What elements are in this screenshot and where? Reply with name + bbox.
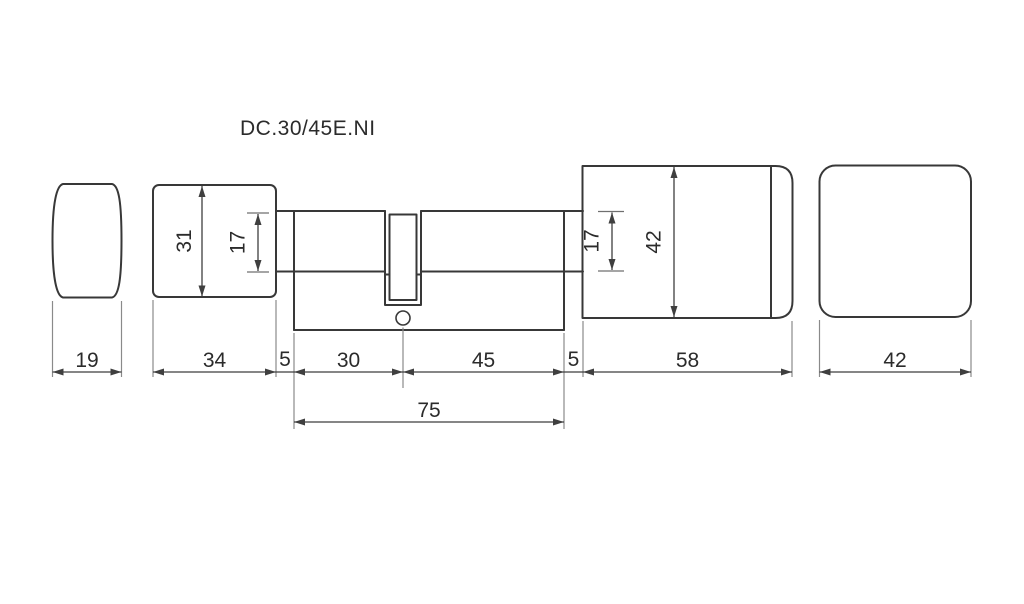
dim-label-75: 75: [417, 399, 440, 422]
dim-label-34: 34: [203, 349, 227, 372]
drawing-canvas: DC.30/45E.NI 19 34 5 30 45 5 58 42 75 31…: [0, 0, 1024, 604]
dim-label-42-knob: 42: [643, 230, 666, 253]
dim-label-5-left: 5: [279, 348, 291, 371]
dim-label-58: 58: [676, 349, 699, 372]
dim-label-19: 19: [75, 349, 98, 372]
dim-label-5-right: 5: [568, 348, 580, 371]
dim-label-31: 31: [173, 229, 196, 252]
drawing-background: [0, 0, 1024, 604]
dim-label-42-front: 42: [883, 349, 906, 372]
dim-label-17-left: 17: [227, 231, 250, 254]
drawing-title: DC.30/45E.NI: [240, 117, 376, 140]
dim-label-30: 30: [337, 349, 360, 372]
dim-label-45: 45: [472, 349, 495, 372]
technical-drawing: DC.30/45E.NI 19 34 5 30 45 5 58 42 75 31…: [0, 0, 1024, 604]
dim-label-17-right: 17: [581, 229, 604, 252]
